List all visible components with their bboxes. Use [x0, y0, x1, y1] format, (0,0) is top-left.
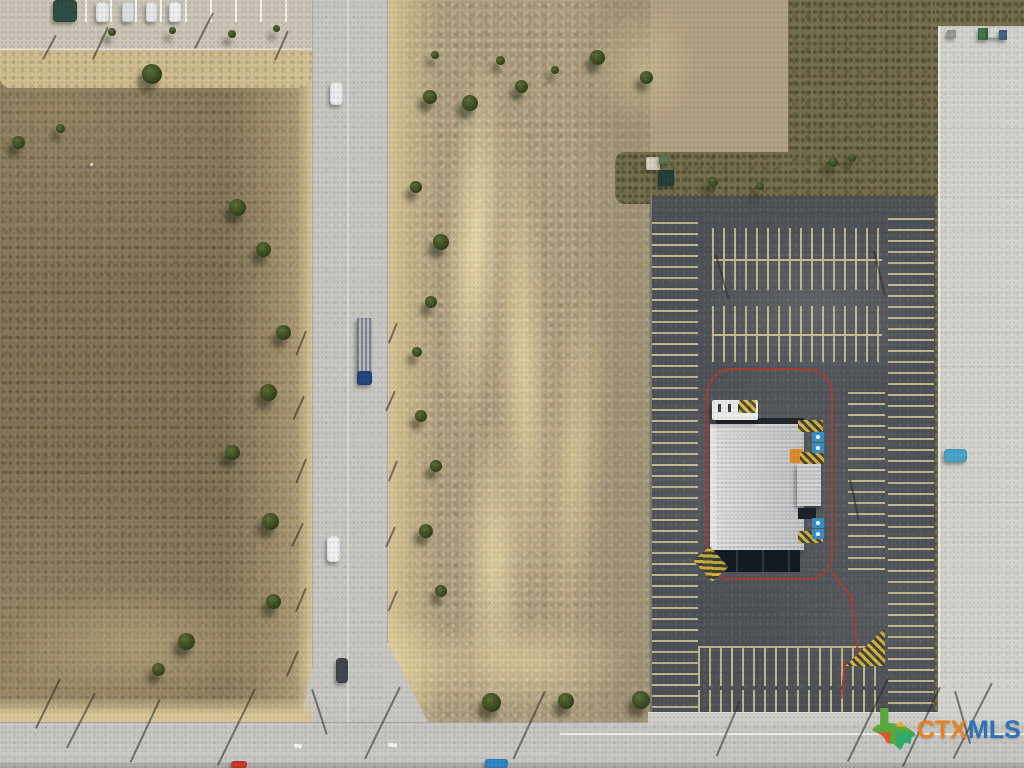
tree	[433, 234, 449, 250]
tree	[558, 693, 574, 709]
pole-shadow	[35, 679, 61, 729]
pole-shadow	[217, 689, 256, 766]
pole-shadow	[291, 523, 304, 547]
shed	[646, 157, 660, 170]
tree	[256, 242, 271, 257]
tree	[225, 445, 240, 460]
parked-car	[96, 2, 109, 22]
tree	[632, 691, 650, 709]
pole-shadow	[311, 689, 328, 735]
tree	[848, 154, 856, 162]
tree	[229, 199, 246, 216]
tree	[410, 181, 422, 193]
pole-shadow	[295, 331, 307, 356]
aerial-photo: CTX MLS	[0, 0, 1024, 768]
pole-shadow	[387, 591, 397, 612]
parked-car	[146, 2, 157, 22]
tree	[412, 347, 422, 357]
tree	[431, 51, 439, 59]
pole-shadow	[849, 479, 860, 520]
tree	[482, 693, 501, 712]
tree	[12, 136, 25, 149]
pole-shadow	[388, 461, 398, 482]
tree	[260, 384, 277, 401]
red-car	[231, 761, 247, 768]
pole-shadow	[274, 31, 289, 61]
pole-shadow	[295, 588, 307, 613]
tree	[423, 90, 437, 104]
tree	[142, 64, 162, 84]
tree	[228, 30, 236, 38]
pole-shadow	[873, 251, 886, 296]
pole-shadow	[66, 693, 96, 749]
ctxmls-watermark: CTX MLS	[870, 706, 1020, 754]
truck-cab	[357, 371, 372, 385]
tree	[756, 182, 764, 190]
pole-shadow	[42, 35, 57, 61]
pickup-truck	[53, 0, 77, 22]
tree	[169, 27, 176, 34]
tree	[462, 95, 478, 111]
tree	[515, 80, 528, 93]
pole-shadow	[385, 527, 396, 548]
parked-car	[122, 2, 134, 22]
pole-shadow	[715, 255, 730, 300]
teal-car	[944, 449, 967, 462]
car-on-road	[330, 82, 343, 105]
tree	[828, 157, 838, 167]
tree	[276, 325, 291, 340]
pole-shadow	[716, 701, 741, 757]
pole-shadow	[130, 699, 161, 763]
tree	[273, 25, 280, 32]
tree	[415, 410, 427, 422]
car-on-road	[336, 658, 348, 683]
tree	[590, 50, 605, 65]
shed-roof	[659, 155, 669, 164]
pole-shadow	[364, 687, 401, 760]
dumpster	[658, 170, 674, 186]
parked-car	[169, 2, 181, 22]
pole-shadow	[512, 691, 546, 760]
tree	[266, 594, 281, 609]
tree	[430, 460, 442, 472]
debris	[90, 163, 93, 166]
watermark-mls-text: MLS	[968, 718, 1021, 743]
pole-shadow	[388, 323, 398, 344]
tree	[262, 513, 279, 530]
equipment	[947, 30, 956, 38]
tree	[108, 28, 116, 36]
pole-shadow	[286, 651, 299, 677]
tree	[178, 633, 195, 650]
pole-shadow	[92, 27, 109, 60]
scene-objects	[0, 0, 1024, 768]
tree	[56, 124, 65, 133]
pole-shadow	[295, 459, 307, 484]
tree	[708, 177, 718, 187]
equipment	[999, 30, 1007, 40]
tree	[551, 66, 559, 74]
tree	[425, 296, 437, 308]
tree	[419, 524, 433, 538]
watermark-ctx-text: CTX	[917, 718, 967, 743]
equipment	[978, 28, 988, 40]
tree	[435, 585, 447, 597]
blue-car	[485, 759, 508, 768]
car-on-road	[327, 536, 340, 562]
texas-state-icon	[870, 708, 916, 752]
pole-shadow	[194, 13, 214, 50]
tree	[152, 663, 165, 676]
pole-shadow	[293, 396, 305, 421]
tree	[496, 56, 505, 65]
tree	[640, 71, 653, 84]
semi-trailer	[357, 318, 372, 373]
pole-shadow	[385, 391, 396, 412]
